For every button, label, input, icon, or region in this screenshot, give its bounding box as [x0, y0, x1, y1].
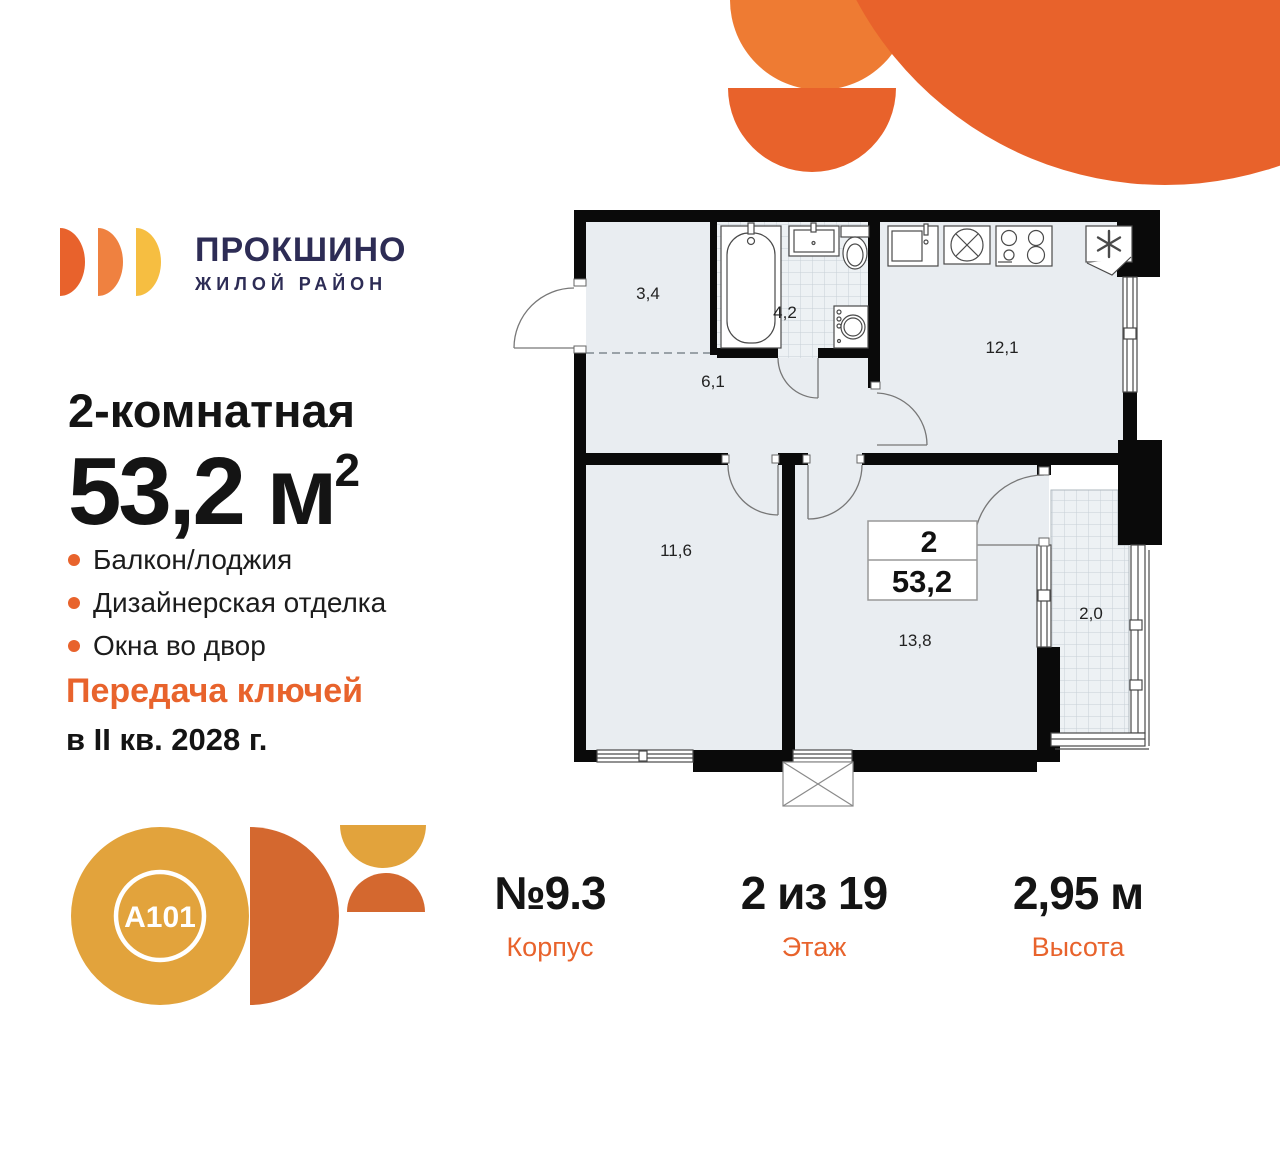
toilet [841, 226, 869, 269]
a101-small-orange [347, 873, 425, 912]
room-label-hallway: 6,1 [701, 372, 725, 391]
kitchen-window [1123, 277, 1137, 392]
handover-title: Передача ключей [66, 672, 486, 711]
info-building: №9.3 Корпус [430, 866, 670, 963]
kitchen-sink [888, 224, 938, 266]
decorative-semicircles [0, 0, 1280, 210]
room-label-kitchen: 12,1 [985, 338, 1018, 357]
feature-label: Окна во двор [93, 630, 266, 662]
height-label: Высота [958, 932, 1198, 963]
building-value: №9.3 [430, 866, 670, 920]
semicircle-small-bottom [728, 88, 896, 172]
bullet-icon [68, 597, 80, 609]
bath-sink [789, 223, 839, 256]
entry-door [514, 288, 574, 348]
summary-area: 53,2 [892, 564, 952, 599]
a101-half-disc [250, 827, 339, 1005]
summary-rooms: 2 [921, 526, 938, 559]
floor-plan: 3,4 4,2 6,1 12,1 11,6 13,8 2,0 2 53,2 [500, 200, 1180, 810]
building-label: Корпус [430, 932, 670, 963]
bullet-icon [68, 640, 80, 652]
height-value: 2,95 м [958, 866, 1198, 920]
handover-block: Передача ключей в II кв. 2028 г. [66, 672, 486, 758]
developer-logo: A101 [50, 810, 450, 1040]
room-label-living: 13,8 [898, 631, 931, 650]
info-floor: 2 из 19 Этаж [694, 866, 934, 963]
room-label-bathroom: 4,2 [773, 303, 797, 322]
floor-label: Этаж [694, 932, 934, 963]
french-window-marker [783, 762, 853, 806]
brand-title: ПРОКШИНО [195, 233, 406, 267]
washing-machine [834, 306, 868, 348]
plan-summary-box: 2 53,2 [868, 521, 977, 600]
feature-label: Дизайнерская отделка [93, 587, 386, 619]
brand-subtitle: ЖИЛОЙ РАЙОН [195, 274, 406, 295]
total-area-title: 53,2 м2 [68, 444, 488, 540]
floor-value: 2 из 19 [694, 866, 934, 920]
a101-small-yellow [340, 825, 426, 868]
feature-label: Балкон/лоджия [93, 544, 292, 576]
logo-petal-light-orange [98, 228, 123, 296]
feature-item: Дизайнерская отделка [68, 587, 488, 619]
headline-block: 2-комнатная 53,2 м2 [68, 383, 488, 540]
logo-petal-yellow [136, 228, 161, 296]
handover-date: в II кв. 2028 г. [66, 722, 486, 758]
balcony-door-window [1037, 545, 1051, 647]
feature-item: Балкон/лоджия [68, 544, 488, 576]
room-label-wardrobe: 3,4 [636, 284, 660, 303]
rooms-count-title: 2-комнатная [68, 383, 488, 438]
brand-text-block: ПРОКШИНО ЖИЛОЙ РАЙОН [195, 233, 406, 295]
logo-petal-orange [60, 228, 85, 296]
a101-text: A101 [124, 901, 196, 934]
hob [996, 226, 1052, 266]
features-list: Балкон/лоджия Дизайнерская отделка Окна … [68, 544, 488, 673]
area-value: 53,2 [68, 438, 243, 545]
bullet-icon [68, 554, 80, 566]
info-height: 2,95 м Высота [958, 866, 1198, 963]
room-label-balcony: 2,0 [1079, 604, 1103, 623]
room-label-bedroom: 11,6 [660, 541, 692, 560]
stove [944, 226, 990, 264]
living-window [793, 750, 852, 762]
area-unit: м [243, 438, 335, 545]
bedroom-window [597, 750, 693, 762]
area-superscript: 2 [335, 444, 361, 496]
feature-item: Окна во двор [68, 630, 488, 662]
bathtub [721, 223, 781, 348]
